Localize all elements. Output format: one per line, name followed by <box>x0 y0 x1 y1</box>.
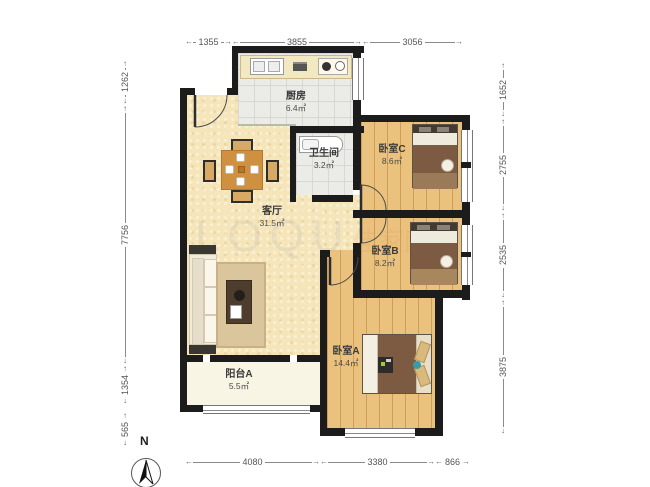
dim-left-3: ↑1354↓ <box>118 365 132 412</box>
dim-top-1: ←1355→ <box>185 36 232 48</box>
kitchen-sink-basin <box>268 61 280 72</box>
dining-plate <box>236 177 245 186</box>
hallway-floor <box>320 195 361 250</box>
wall-segment <box>353 290 470 298</box>
bedroom-a-window <box>345 428 415 438</box>
wall-segment <box>180 355 320 362</box>
round-pillow-icon <box>440 255 453 268</box>
bed-tray <box>378 357 393 373</box>
wall-segment <box>310 405 320 412</box>
bedroom-a-entry-floor <box>327 250 353 298</box>
dim-right-4: ↑3875↓ <box>496 299 510 435</box>
dining-chair <box>231 190 253 203</box>
cooktop-pan-icon <box>335 61 345 71</box>
wall-segment <box>312 195 353 202</box>
dim-right-3: ↑2535↓ <box>496 212 510 299</box>
bedroom-c-bed <box>412 124 458 188</box>
sofa-end-table <box>189 245 216 254</box>
window-mullion <box>461 252 471 257</box>
wall-segment <box>435 290 443 436</box>
dim-left-2: ↑7756↓ <box>118 105 132 365</box>
bedroom-b-bed <box>410 222 458 284</box>
balcony-window <box>203 405 310 414</box>
wall-segment <box>353 115 470 122</box>
sofa <box>189 254 217 345</box>
wall-segment <box>353 243 361 290</box>
bathroom-basin <box>302 139 319 150</box>
dim-right-2: ↑2755↓ <box>496 118 510 212</box>
kitchen-sink-basin <box>253 61 265 72</box>
dining-chair <box>203 160 216 182</box>
balcony-door-gap <box>290 355 297 362</box>
wall-segment <box>353 133 361 190</box>
wall-segment <box>180 405 203 412</box>
dining-plate <box>225 165 234 174</box>
dim-left-1: ↑1262↓ <box>118 60 132 105</box>
coffee-table-papers <box>230 305 242 319</box>
bedroom-a-bed <box>362 334 432 394</box>
dim-top-2: ←3855→ <box>232 36 362 48</box>
dim-bottom-2: ←3380→ <box>320 456 435 468</box>
dining-plate <box>250 165 259 174</box>
coffee-table-kettle-icon <box>234 290 245 301</box>
wall-segment <box>290 126 364 133</box>
wall-segment <box>180 88 187 412</box>
dim-top-3: ←3056→ <box>362 36 463 48</box>
dining-plate <box>236 153 245 162</box>
wall-segment <box>320 250 327 436</box>
round-pillow-icon <box>441 159 454 172</box>
kitchen-appliance <box>293 62 307 71</box>
window-mullion <box>461 162 471 168</box>
compass-icon <box>131 458 161 487</box>
dim-left-4: ↑565↓ <box>118 412 132 438</box>
sofa-end-table <box>189 345 216 354</box>
kitchen-threshold <box>238 124 296 126</box>
wall-segment <box>227 88 238 95</box>
wall-segment <box>290 126 296 202</box>
wall-segment <box>353 210 470 218</box>
dining-centerpiece <box>238 166 245 173</box>
wall-segment <box>320 250 330 257</box>
kitchen-window <box>352 58 364 100</box>
balcony-floor <box>187 362 320 405</box>
dim-bottom-1: ←4080→ <box>185 456 320 468</box>
bed-deco-icon <box>413 361 421 369</box>
dining-chair <box>266 160 279 182</box>
floor-plan-canvas: LOQU 佳家网 <box>0 0 650 487</box>
compass-north-label: N <box>140 434 149 448</box>
wall-segment <box>415 428 443 436</box>
dim-bottom-3: ←866→ <box>435 456 463 468</box>
dim-right-1: ↑1652↓ <box>496 62 510 118</box>
cooktop-burner-icon <box>322 62 331 71</box>
balcony-door-gap <box>203 355 210 362</box>
